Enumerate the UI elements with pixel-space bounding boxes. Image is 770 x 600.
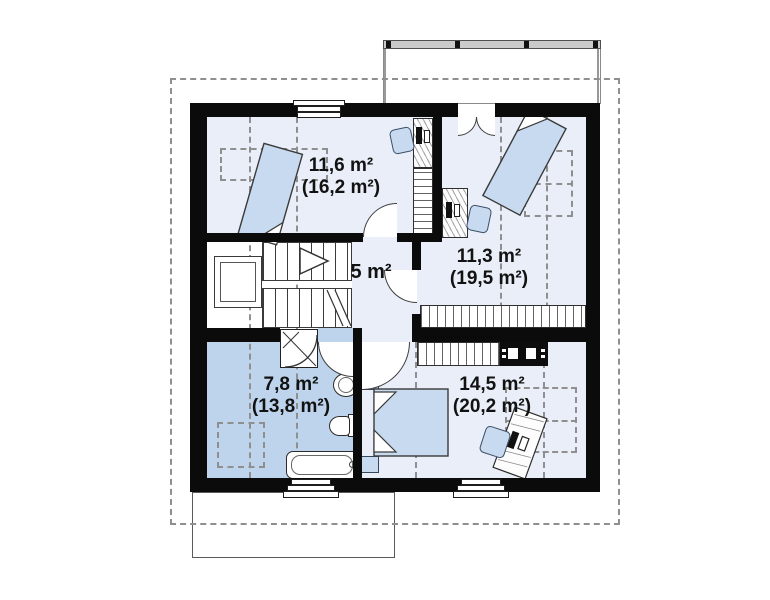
- room1-area: 11,6 m²: [302, 155, 380, 177]
- wardrobe: [417, 342, 500, 366]
- hall-area-label: 5 m²: [350, 261, 391, 283]
- toilet-bowl: [329, 416, 350, 436]
- dresser-handle: [502, 349, 506, 352]
- computer-icon: [424, 130, 430, 143]
- balcony-post: [593, 41, 598, 48]
- wall-bathroom-top: [207, 328, 280, 342]
- bathroom-area-label: 7,8 m² (13,8 m²): [252, 374, 330, 418]
- balcony-post: [455, 41, 460, 48]
- wall-hall-room2: [412, 242, 421, 270]
- wall-exterior-top: [495, 103, 600, 117]
- dresser-drawer: [508, 348, 518, 359]
- room2-area-label: 11,3 m² (19,5 m²): [450, 246, 528, 290]
- window: [297, 112, 341, 118]
- bedroom-area: 14,5 m²: [453, 374, 531, 396]
- room1-area-total: (16,2 m²): [302, 177, 380, 199]
- wall-exterior-bottom: [190, 478, 600, 492]
- room2-area: 11,3 m²: [450, 246, 528, 268]
- dresser-handle: [541, 349, 545, 352]
- wall-room1-room2: [433, 117, 442, 242]
- computer-icon: [416, 127, 422, 144]
- room1-area-label: 11,6 m² (16,2 m²): [302, 155, 380, 199]
- dresser-drawer: [526, 348, 536, 359]
- roof-window-outline: [217, 422, 265, 468]
- computer-icon: [446, 202, 452, 218]
- balcony-post: [386, 41, 391, 48]
- balcony-post: [524, 41, 529, 48]
- stair-landing-inner: [220, 262, 256, 302]
- dresser-handle: [541, 355, 545, 358]
- balcony-railing: [383, 40, 601, 49]
- stair-direction-marks: [255, 240, 400, 332]
- room2-area-total: (19,5 m²): [450, 268, 528, 290]
- shower-door: [278, 327, 324, 373]
- bedroom-area-total: (20,2 m²): [453, 396, 531, 418]
- washbasin-bowl: [338, 377, 354, 393]
- wardrobe: [420, 305, 586, 328]
- window: [453, 491, 509, 498]
- bathroom-area: 7,8 m²: [252, 374, 330, 396]
- floor-plan: 11,6 m² (16,2 m²) 11,3 m² (19,5 m²) 5 m²…: [0, 0, 770, 600]
- wall-room1-hall: [207, 233, 363, 242]
- hall-area: 5 m²: [350, 261, 391, 283]
- bedroom-area-label: 14,5 m² (20,2 m²): [453, 374, 531, 418]
- dresser-handle: [502, 355, 506, 358]
- bathroom-area-total: (13,8 m²): [252, 396, 330, 418]
- wall-bathroom-bedroom: [353, 328, 362, 478]
- computer-icon: [454, 204, 460, 217]
- window: [283, 491, 339, 498]
- bathtub-inner: [291, 455, 353, 475]
- wall-exterior-right: [586, 103, 600, 492]
- wall-bedroom-top: [412, 328, 586, 342]
- wall-hall-room2: [412, 314, 421, 328]
- wardrobe: [413, 168, 433, 237]
- wall-exterior-left: [190, 103, 207, 492]
